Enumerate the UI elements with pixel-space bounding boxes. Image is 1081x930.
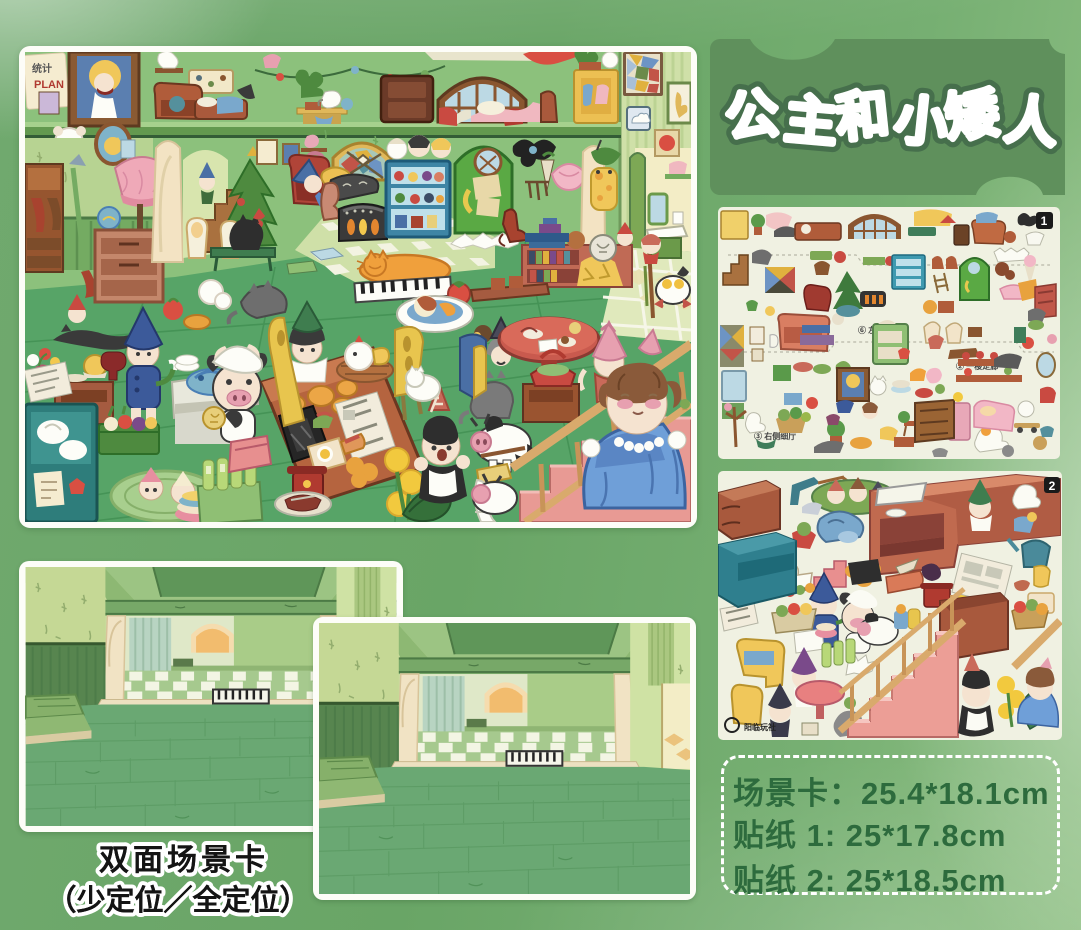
svg-text:1: 1 [1041, 214, 1048, 228]
svg-text:PLAN: PLAN [34, 79, 64, 91]
svg-text:（少定位／全定位）: （少定位／全定位） [47, 883, 308, 917]
svg-text:统计: 统计 [32, 62, 52, 75]
svg-text:2: 2 [1049, 479, 1056, 493]
svg-text:阳临玩社: 阳临玩社 [744, 722, 776, 732]
svg-text:双面场景卡: 双面场景卡 [99, 844, 269, 877]
